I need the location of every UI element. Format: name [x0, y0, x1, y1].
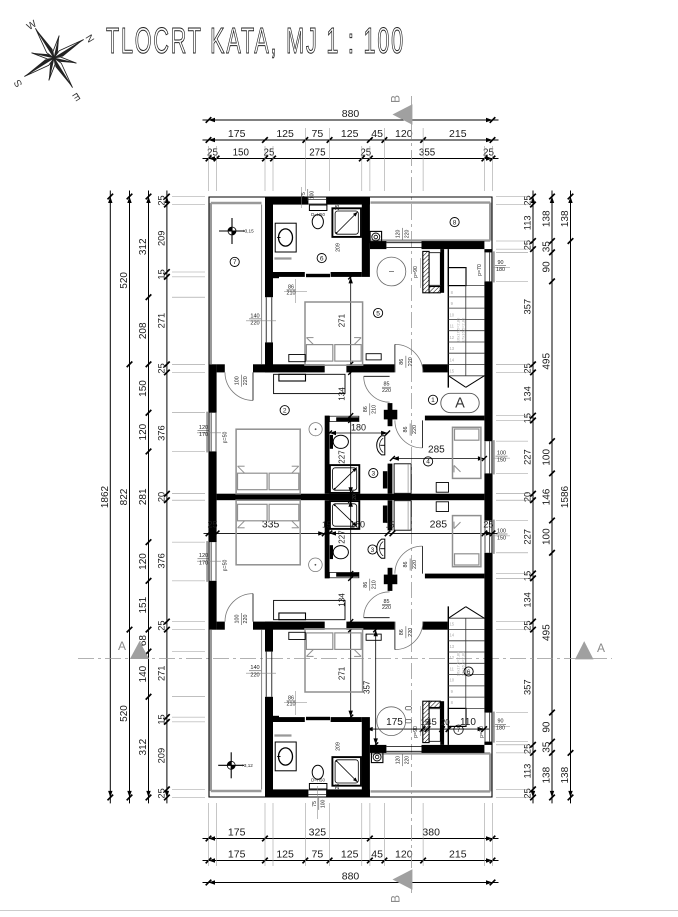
svg-text:220: 220: [382, 388, 391, 394]
svg-text:150: 150: [138, 380, 149, 397]
svg-text:140: 140: [250, 313, 259, 319]
svg-text:15: 15: [523, 413, 533, 423]
svg-text:220: 220: [405, 756, 411, 765]
svg-text:125: 125: [341, 128, 359, 140]
svg-text:175: 175: [228, 827, 246, 839]
svg-text:25: 25: [483, 520, 493, 530]
svg-text:17x16,5=2,80: 17x16,5=2,80: [461, 317, 466, 342]
svg-text:20: 20: [523, 492, 533, 502]
svg-text:325: 325: [309, 827, 327, 839]
svg-text:5: 5: [376, 310, 380, 317]
svg-text:25: 25: [156, 788, 166, 798]
svg-text:100: 100: [310, 191, 316, 200]
svg-text:14: 14: [449, 357, 454, 362]
svg-text:14: 14: [449, 633, 454, 638]
svg-text:25: 25: [207, 520, 217, 530]
svg-text:495: 495: [542, 353, 553, 370]
svg-text:125: 125: [276, 128, 294, 140]
svg-text:8: 8: [453, 219, 457, 226]
svg-text:285: 285: [428, 444, 445, 455]
svg-text:100: 100: [497, 451, 506, 457]
svg-text:13: 13: [449, 644, 454, 649]
svg-text:A: A: [455, 396, 465, 412]
svg-text:1: 1: [431, 397, 435, 404]
svg-text:12: 12: [449, 655, 454, 660]
svg-text:35: 35: [542, 741, 553, 753]
svg-text:138: 138: [560, 766, 571, 783]
svg-text:357: 357: [523, 679, 533, 695]
svg-text:1862: 1862: [100, 485, 111, 508]
svg-text:380: 380: [422, 827, 440, 839]
svg-text:175: 175: [228, 849, 246, 861]
svg-text:85: 85: [384, 382, 390, 388]
svg-text:3: 3: [371, 547, 375, 554]
svg-text:120: 120: [199, 553, 208, 559]
svg-text:15: 15: [523, 571, 533, 581]
svg-text:100: 100: [542, 528, 553, 545]
svg-text:15: 15: [156, 714, 166, 724]
svg-text:209: 209: [336, 742, 342, 751]
svg-text:271: 271: [338, 666, 347, 680]
svg-text:86: 86: [288, 284, 294, 290]
svg-text:140: 140: [250, 665, 259, 671]
svg-text:25: 25: [523, 620, 533, 630]
svg-text:220: 220: [250, 672, 259, 678]
svg-text:209: 209: [156, 748, 166, 764]
svg-text:45: 45: [371, 128, 383, 140]
svg-text:D=H50: D=H50: [311, 778, 325, 783]
svg-text:2: 2: [283, 408, 287, 415]
svg-text:357: 357: [363, 680, 372, 694]
svg-text:880: 880: [342, 108, 360, 120]
svg-text:D=H50: D=H50: [311, 212, 325, 217]
svg-text:376: 376: [156, 425, 166, 441]
svg-text:271: 271: [156, 666, 166, 682]
svg-text:125: 125: [276, 849, 294, 861]
svg-text:p=70: p=70: [479, 726, 485, 738]
svg-text:86: 86: [403, 562, 409, 568]
svg-text:25: 25: [156, 195, 166, 205]
svg-text:75: 75: [312, 128, 324, 140]
svg-text:90: 90: [498, 719, 504, 725]
svg-text:220: 220: [250, 321, 259, 327]
svg-text:100: 100: [234, 615, 240, 624]
svg-text:110: 110: [460, 717, 476, 728]
svg-text:220: 220: [382, 605, 391, 611]
svg-text:86: 86: [403, 427, 409, 433]
svg-text:15: 15: [386, 521, 395, 530]
svg-text:376: 376: [156, 553, 166, 569]
svg-text:7: 7: [457, 727, 461, 734]
svg-text:3: 3: [371, 470, 375, 477]
svg-text:100: 100: [321, 800, 327, 809]
svg-text:357: 357: [523, 299, 533, 315]
svg-text:220: 220: [243, 376, 249, 385]
svg-text:12: 12: [449, 335, 454, 340]
svg-text:1586: 1586: [560, 485, 571, 508]
svg-text:138: 138: [542, 766, 553, 783]
svg-text:85: 85: [384, 599, 390, 605]
svg-text:220: 220: [412, 425, 418, 434]
svg-text:100: 100: [542, 449, 553, 466]
svg-text:150: 150: [497, 535, 506, 541]
svg-text:p=90: p=90: [413, 266, 419, 278]
svg-text:180: 180: [351, 422, 366, 432]
svg-text:151: 151: [138, 596, 149, 613]
svg-text:215: 215: [449, 849, 467, 861]
svg-text:25: 25: [335, 205, 341, 211]
svg-text:75: 75: [312, 801, 318, 807]
svg-text:90: 90: [542, 261, 553, 273]
svg-text:25: 25: [523, 744, 533, 754]
svg-text:125: 125: [341, 849, 359, 861]
svg-text:120: 120: [138, 553, 149, 570]
svg-text:75: 75: [301, 192, 307, 198]
svg-text:170: 170: [199, 432, 208, 438]
svg-text:p=50: p=50: [223, 560, 229, 572]
svg-text:20: 20: [352, 494, 358, 500]
svg-text:275: 275: [309, 148, 326, 159]
svg-text:25: 25: [335, 784, 341, 790]
svg-text:B: B: [389, 95, 403, 103]
svg-text:120: 120: [199, 425, 208, 431]
svg-text:495: 495: [542, 624, 553, 641]
svg-text:p=90: p=90: [413, 726, 419, 738]
svg-text:220: 220: [408, 628, 414, 637]
svg-text:A: A: [118, 639, 126, 653]
svg-text:312: 312: [138, 738, 149, 755]
svg-text:355: 355: [419, 148, 436, 159]
svg-text:17x16,5=2,80: 17x16,5=2,80: [461, 651, 466, 676]
svg-text:45: 45: [371, 849, 383, 861]
svg-text:113: 113: [523, 215, 533, 230]
svg-text:210: 210: [372, 580, 378, 589]
svg-text:15: 15: [449, 369, 454, 374]
svg-text:180: 180: [350, 520, 365, 530]
svg-text:312: 312: [138, 238, 149, 255]
svg-text:220: 220: [408, 357, 414, 366]
svg-text:210: 210: [372, 405, 378, 414]
svg-text:227: 227: [523, 449, 533, 465]
svg-text:+3,15: +3,15: [242, 229, 254, 234]
svg-text:15: 15: [156, 269, 166, 279]
svg-text:25: 25: [156, 363, 166, 373]
svg-text:15: 15: [449, 621, 454, 626]
svg-text:86: 86: [363, 582, 369, 588]
svg-text:86: 86: [288, 695, 294, 701]
svg-text:146: 146: [542, 488, 553, 505]
svg-text:138: 138: [542, 210, 553, 227]
svg-text:11: 11: [450, 666, 455, 671]
svg-text:25: 25: [483, 148, 494, 159]
svg-text:100: 100: [234, 376, 240, 385]
svg-text:220: 220: [412, 560, 418, 569]
svg-text:90: 90: [498, 260, 504, 266]
svg-text:215: 215: [449, 128, 467, 140]
svg-text:120: 120: [395, 128, 413, 140]
svg-text:20: 20: [156, 492, 166, 502]
svg-text:138: 138: [560, 210, 571, 227]
svg-text:520: 520: [119, 272, 130, 289]
svg-text:B: B: [389, 895, 403, 903]
svg-text:7: 7: [233, 259, 237, 266]
svg-text:90: 90: [542, 721, 553, 733]
svg-text:140: 140: [138, 665, 149, 682]
svg-text:86: 86: [363, 406, 369, 412]
svg-text:285: 285: [430, 519, 448, 531]
svg-text:86: 86: [399, 359, 405, 365]
svg-text:227: 227: [523, 529, 533, 545]
svg-text:25: 25: [523, 788, 533, 798]
svg-text:209: 209: [336, 243, 342, 252]
svg-text:520: 520: [119, 705, 130, 722]
svg-text:180: 180: [496, 726, 505, 732]
svg-text:220: 220: [405, 230, 411, 239]
svg-text:A: A: [597, 641, 605, 655]
svg-text:175: 175: [386, 717, 403, 728]
svg-text:822: 822: [119, 488, 130, 505]
svg-text:271: 271: [338, 313, 347, 327]
svg-text:p=70: p=70: [477, 264, 483, 276]
svg-text:TLOCRT KATA, MJ 1 : 100: TLOCRT KATA, MJ 1 : 100: [106, 21, 405, 61]
svg-text:170: 170: [199, 560, 208, 566]
svg-text:210: 210: [287, 291, 296, 297]
svg-text:281: 281: [138, 488, 149, 505]
svg-text:6: 6: [467, 669, 471, 676]
svg-text:+3,12: +3,12: [241, 763, 253, 768]
svg-text:35: 35: [542, 241, 553, 253]
svg-text:113: 113: [523, 764, 533, 779]
svg-text:25: 25: [523, 240, 533, 250]
svg-text:120: 120: [395, 849, 413, 861]
svg-text:175: 175: [228, 128, 246, 140]
svg-text:p=50: p=50: [223, 432, 229, 444]
svg-text:11: 11: [450, 324, 455, 329]
svg-text:6: 6: [320, 255, 324, 262]
svg-text:208: 208: [138, 322, 149, 339]
svg-text:120: 120: [396, 756, 402, 765]
svg-text:100: 100: [497, 528, 506, 534]
svg-text:75: 75: [312, 849, 324, 861]
svg-text:227: 227: [338, 530, 347, 544]
svg-text:209: 209: [156, 231, 166, 247]
svg-text:220: 220: [243, 615, 249, 624]
svg-text:10: 10: [449, 678, 454, 683]
svg-text:10: 10: [449, 312, 454, 317]
svg-text:4: 4: [426, 459, 430, 466]
svg-text:120: 120: [396, 230, 402, 239]
svg-text:880: 880: [342, 871, 360, 883]
svg-text:86: 86: [399, 629, 405, 635]
svg-text:227: 227: [338, 450, 347, 464]
svg-text:210: 210: [287, 702, 296, 708]
svg-text:150: 150: [233, 148, 250, 159]
svg-text:271: 271: [156, 313, 166, 329]
svg-text:120: 120: [138, 423, 149, 440]
svg-text:134: 134: [523, 386, 533, 402]
svg-text:180: 180: [496, 267, 505, 273]
svg-text:15: 15: [322, 521, 331, 530]
svg-text:25: 25: [523, 195, 533, 205]
svg-text:25: 25: [523, 363, 533, 373]
svg-text:45: 45: [426, 717, 437, 728]
svg-text:13: 13: [449, 346, 454, 351]
svg-text:150: 150: [497, 458, 506, 464]
svg-text:20: 20: [441, 718, 450, 727]
svg-text:134: 134: [523, 592, 533, 608]
svg-text:25: 25: [156, 620, 166, 630]
